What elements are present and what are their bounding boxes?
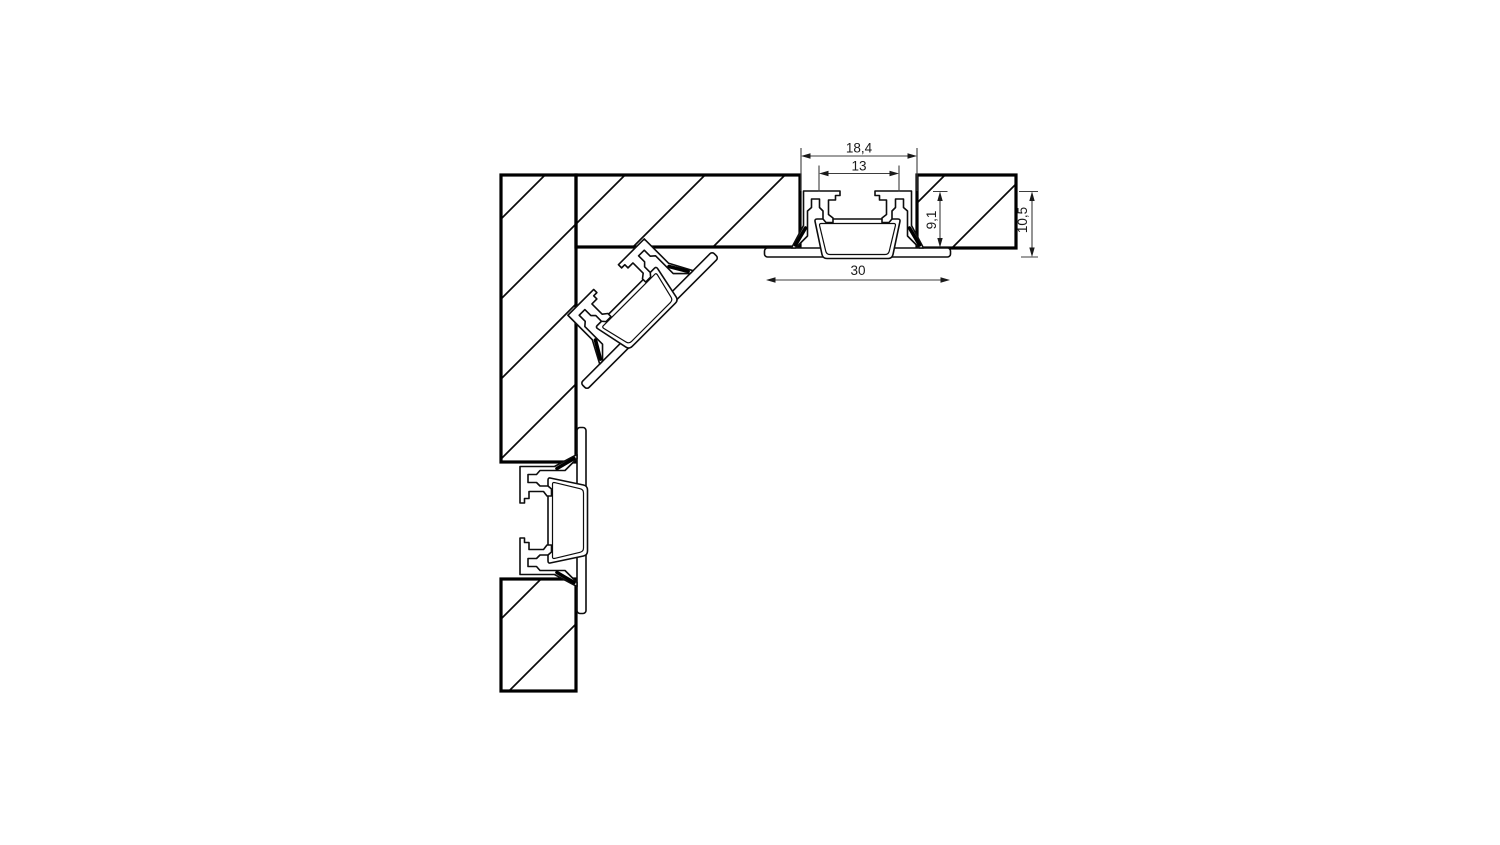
dimension-label-flange-width: 30 bbox=[850, 263, 865, 278]
ceiling-panel-section bbox=[576, 175, 800, 247]
dimension-total-height: 10,5 bbox=[1015, 192, 1038, 258]
dimension-label-opening-width: 18,4 bbox=[846, 141, 873, 156]
dimension-label-total-height: 10,5 bbox=[1015, 207, 1030, 233]
led-profile-installation-diagram: 18,4 13 9,1 10,5 bbox=[0, 0, 1500, 845]
bottom-panel-section bbox=[501, 579, 576, 691]
technical-drawing-page: 18,4 13 9,1 10,5 bbox=[0, 0, 1500, 845]
dimension-label-recess-depth: 9,1 bbox=[924, 211, 939, 230]
dimension-label-inner-width: 13 bbox=[851, 159, 866, 174]
dimension-inner-width: 13 bbox=[819, 159, 899, 192]
dimension-flange-width: 30 bbox=[766, 263, 950, 283]
wall-panel-section bbox=[501, 175, 576, 462]
